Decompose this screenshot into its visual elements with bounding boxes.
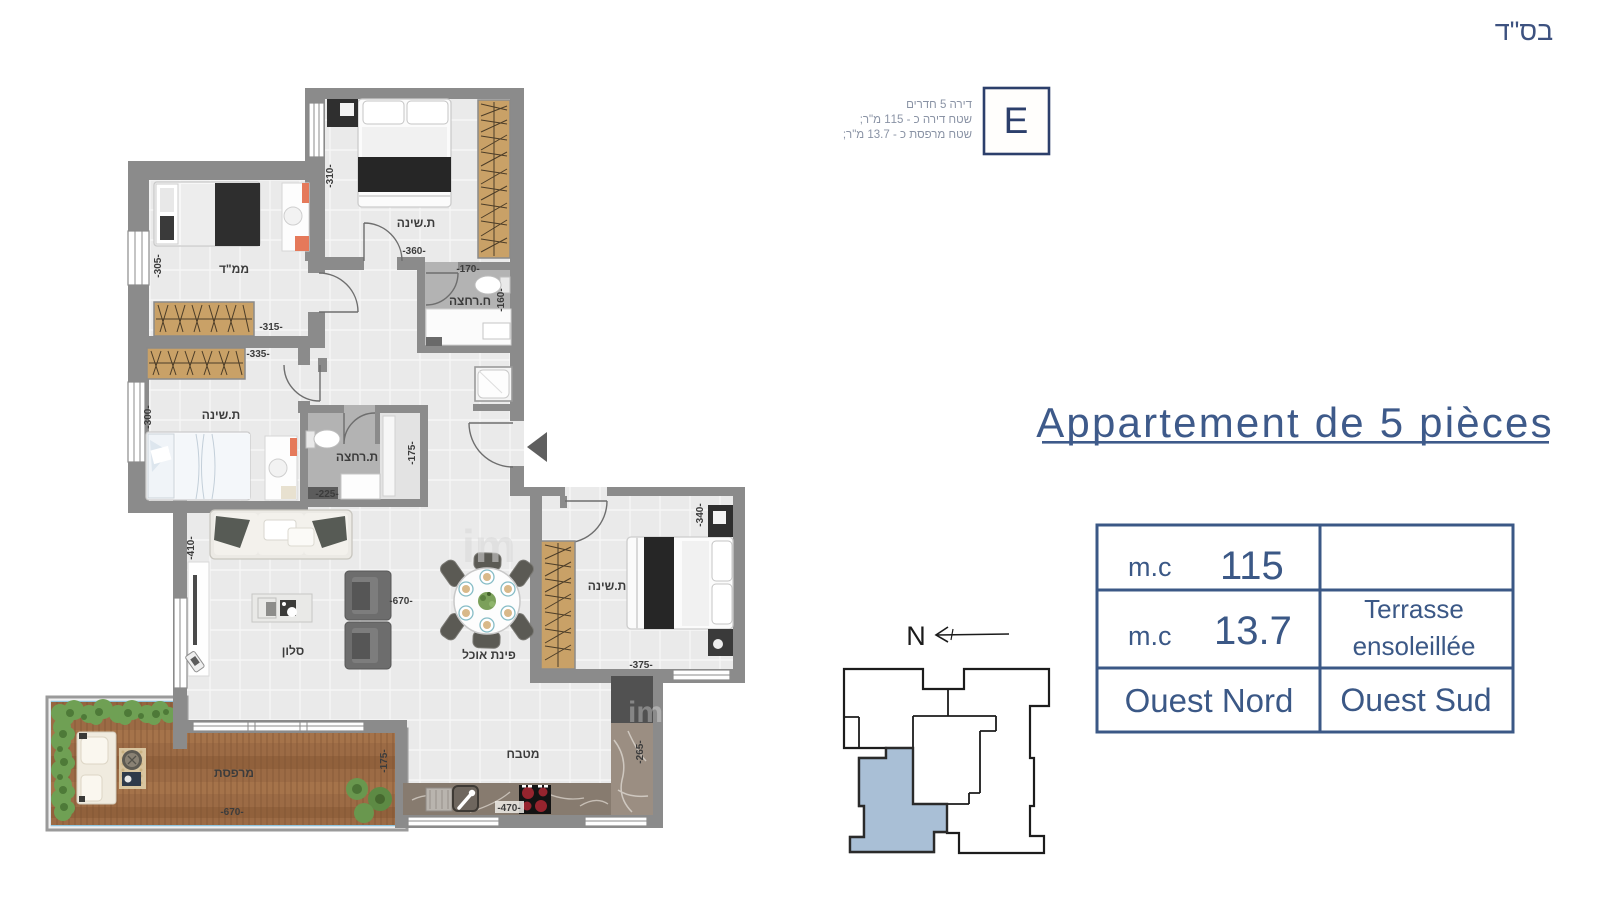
svg-text:-410-: -410- [186, 536, 197, 559]
svg-text:Ouest Sud: Ouest Sud [1340, 682, 1491, 718]
svg-text:-670-: -670- [389, 596, 412, 607]
svg-text:im: im [628, 696, 663, 729]
svg-text:im: im [462, 520, 516, 572]
svg-text:-225-: -225- [315, 489, 338, 500]
svg-text:-305-: -305- [153, 254, 164, 277]
svg-text:E: E [1004, 100, 1029, 141]
svg-text:-160-: -160- [496, 288, 507, 311]
svg-text:-335-: -335- [246, 349, 269, 360]
svg-text:-310-: -310- [325, 164, 336, 187]
svg-text:בס"ד: בס"ד [1495, 16, 1553, 46]
svg-text:ensoleillée: ensoleillée [1353, 631, 1476, 661]
svg-text:-170-: -170- [456, 264, 479, 275]
svg-text:-265-: -265- [635, 740, 646, 763]
svg-text:דירה 5 חדרים: דירה 5 חדרים [906, 99, 973, 111]
svg-text:m.c: m.c [1128, 552, 1172, 582]
svg-text:Ouest Nord: Ouest Nord [1125, 682, 1294, 719]
svg-text:פינת אוכל: פינת אוכל [462, 648, 516, 662]
svg-text:-360-: -360- [402, 246, 425, 257]
svg-text:N: N [906, 621, 926, 651]
svg-text:ת.שינה: ת.שינה [397, 216, 436, 230]
svg-text:-375-: -375- [629, 660, 652, 671]
svg-text:מרפסת: מרפסת [214, 766, 254, 780]
svg-text:סלון: סלון [282, 644, 304, 658]
svg-text:-340-: -340- [695, 503, 706, 526]
svg-text:115: 115 [1220, 544, 1284, 588]
svg-text:-175-: -175- [407, 441, 418, 464]
svg-text:-670-: -670- [220, 807, 243, 818]
svg-text:m.c: m.c [1128, 621, 1172, 651]
svg-text:מטבח: מטבח [506, 747, 539, 761]
svg-text:-315-: -315- [259, 322, 282, 333]
svg-text:-300-: -300- [143, 405, 154, 428]
svg-text:ת.שינה: ת.שינה [588, 579, 627, 593]
svg-text:ח.רחצה: ח.רחצה [449, 294, 491, 308]
svg-text:ת.שינה: ת.שינה [202, 408, 241, 422]
svg-text:שטח דירה כ - 115 מ"ר;: שטח דירה כ - 115 מ"ר; [860, 114, 972, 126]
svg-text:ת.רחצה: ת.רחצה [336, 450, 378, 464]
svg-text:-175-: -175- [379, 749, 390, 772]
svg-text:-470-: -470- [497, 803, 520, 814]
svg-text:13.7: 13.7 [1214, 609, 1292, 653]
svg-text:ממ"ד: ממ"ד [219, 262, 249, 276]
svg-text:Appartement de 5 pièces: Appartement de 5 pièces [1036, 399, 1554, 446]
svg-text:Terrasse: Terrasse [1364, 594, 1464, 624]
svg-text:שטח מרפסת כ - 13.7 מ"ר;: שטח מרפסת כ - 13.7 מ"ר; [843, 129, 972, 141]
